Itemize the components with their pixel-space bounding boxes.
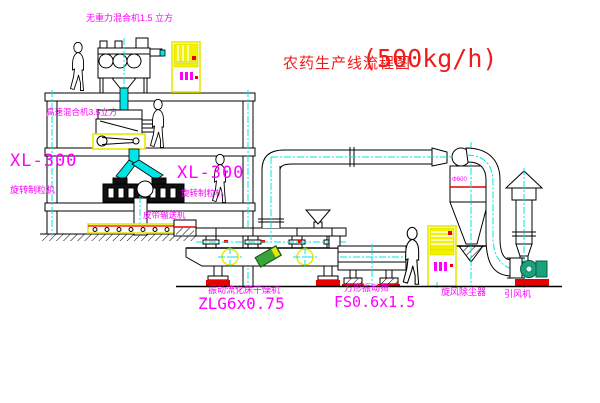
belt-conveyor-machine [88, 224, 184, 233]
dryer-feed-chute [174, 220, 196, 236]
vibrating-sieve-machine [338, 244, 406, 287]
control-cabinet-top [172, 42, 200, 92]
drawing-title-capacity: (500kg/h) [362, 44, 497, 73]
cad-drawing-pesticide-line: 农药生产线流程图 (500kg/h) 无重力混合机1.5 立方 高速混合机3.5… [0, 0, 600, 403]
label-cyclone-dim: Φ600 [452, 177, 467, 183]
induced-draft-fan-machine [507, 258, 549, 286]
control-cabinet-ground [428, 226, 456, 288]
label-granulator-model-mid: XL-300 [177, 165, 244, 182]
label-granulator-model-left: XL-300 [10, 153, 77, 170]
label-sieve-name: 方形振动筛 [344, 284, 389, 293]
label-dryer-model: ZLG6x0.75 [198, 296, 285, 312]
label-granulator-name-mid: 旋转制粒机 [181, 189, 224, 198]
label-belt-conveyor: 皮带输送机 [143, 211, 186, 220]
label-high-speed-mixer: 高速混合机3.5立方 [46, 108, 117, 117]
label-granulator-name-left: 旋转制粒机 [10, 186, 55, 195]
label-fan: 引风机 [504, 290, 531, 299]
label-sieve-model: FS0.6x1.5 [334, 295, 415, 310]
exhaust-duct [258, 147, 455, 240]
label-cyclone: 旋风除尘器 [441, 288, 486, 297]
label-gravity-mixer: 无重力混合机1.5 立方 [86, 14, 173, 23]
